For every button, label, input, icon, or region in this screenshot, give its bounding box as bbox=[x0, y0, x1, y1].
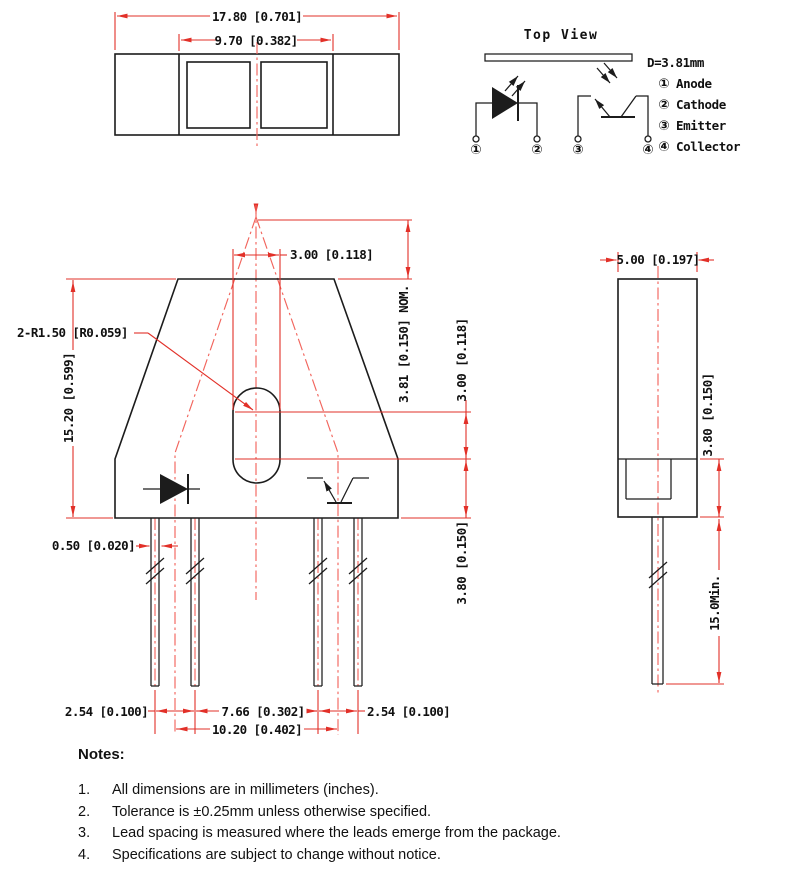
front-view: 3.00 [0.118] 3.81 [0.150] NOM. 2-R1.50 [… bbox=[17, 205, 471, 737]
pin-4-mark: ④ bbox=[642, 142, 653, 158]
legend-pin-1-mark: ① bbox=[658, 76, 669, 92]
legend-pin-4-mark: ④ bbox=[658, 139, 669, 155]
led-symbol-icon bbox=[473, 76, 540, 142]
dim-body-width-label: 5.00 [0.197] bbox=[616, 252, 699, 267]
note-item: 1. All dimensions are in millimeters (in… bbox=[78, 780, 678, 802]
note-text: Lead spacing is measured where the leads… bbox=[112, 823, 561, 845]
side-view: 5.00 [0.197] 3.80 [0.150] 15.0Min. bbox=[600, 252, 724, 695]
legend-pin-2-name: Cathode bbox=[676, 97, 727, 112]
pin-3-mark: ③ bbox=[572, 142, 583, 158]
phototransistor-symbol-icon bbox=[575, 63, 651, 142]
note-number: 2. bbox=[78, 802, 112, 824]
package-top-view: 17.80 [0.701] 9.70 [0.382] bbox=[115, 9, 399, 148]
note-text: All dimensions are in millimeters (inche… bbox=[112, 780, 379, 802]
note-item: 2. Tolerance is ±0.25mm unless otherwise… bbox=[78, 802, 678, 824]
schematic-top-view: Top View ① ② ③ ④ bbox=[470, 28, 741, 158]
dim-focal-height-label: 3.81 [0.150] NOM. bbox=[396, 285, 411, 403]
note-item: 4. Specifications are subject to change … bbox=[78, 845, 678, 867]
note-number: 4. bbox=[78, 845, 112, 867]
legend-pin-3-name: Emitter bbox=[676, 118, 727, 133]
schematic-title: Top View bbox=[524, 28, 599, 43]
detector-window bbox=[261, 62, 327, 128]
dim-overall-width-label: 17.80 [0.701] bbox=[212, 9, 302, 24]
legend-pin-4-name: Collector bbox=[676, 139, 741, 154]
dim-window-width-label: 9.70 [0.382] bbox=[214, 33, 297, 48]
notes-section: Notes: 1. All dimensions are in millimet… bbox=[78, 746, 678, 866]
pin-2-mark: ② bbox=[531, 142, 542, 158]
dim-pitch-center-label: 7.66 [0.302] bbox=[221, 704, 304, 719]
note-number: 3. bbox=[78, 823, 112, 845]
dim-slot-radius-label: 2-R1.50 [R0.059] bbox=[17, 325, 128, 340]
sensor-dimension-drawing: 17.80 [0.701] 9.70 [0.382] Top View bbox=[0, 0, 790, 877]
dim-body-height-label: 15.20 [0.599] bbox=[61, 353, 76, 443]
reflective-surface-bar bbox=[485, 54, 632, 61]
dim-pitch-left-label: 2.54 [0.100] bbox=[65, 704, 148, 719]
dim-arc-centers-label: 3.00 [0.118] bbox=[454, 318, 469, 401]
led-symbol-icon bbox=[143, 474, 200, 504]
note-item: 3. Lead spacing is measured where the le… bbox=[78, 823, 678, 845]
notes-heading: Notes: bbox=[78, 746, 678, 763]
note-text: Tolerance is ±0.25mm unless otherwise sp… bbox=[112, 802, 431, 824]
dim-step-height-label: 3.80 [0.150] bbox=[700, 373, 715, 456]
emitted-light-arrow bbox=[505, 76, 518, 91]
dim-lead-width-label: 0.50 [0.020] bbox=[52, 538, 135, 553]
distance-label: D=3.81mm bbox=[647, 55, 705, 70]
optical-axis-right bbox=[256, 217, 338, 735]
note-number: 1. bbox=[78, 780, 112, 802]
legend-pin-3-mark: ③ bbox=[658, 118, 669, 134]
reflected-light-arrow bbox=[597, 68, 610, 83]
dim-axis-span-label: 10.20 [0.402] bbox=[212, 722, 302, 737]
note-text: Specifications are subject to change wit… bbox=[112, 845, 441, 867]
dim-lead-length-label: 15.0Min. bbox=[707, 575, 722, 630]
legend-pin-2-mark: ② bbox=[658, 97, 669, 113]
dim-slot-width-label: 3.00 [0.118] bbox=[290, 247, 373, 262]
side-step-notch bbox=[626, 459, 671, 499]
dim-pitch-right-label: 2.54 [0.100] bbox=[367, 704, 450, 719]
emitter-window bbox=[187, 62, 250, 128]
pin-1-mark: ① bbox=[470, 142, 481, 158]
dim-slot-to-base-label: 3.80 [0.150] bbox=[454, 521, 469, 604]
legend-pin-1-name: Anode bbox=[676, 76, 713, 91]
reflected-light-arrow bbox=[604, 63, 617, 78]
